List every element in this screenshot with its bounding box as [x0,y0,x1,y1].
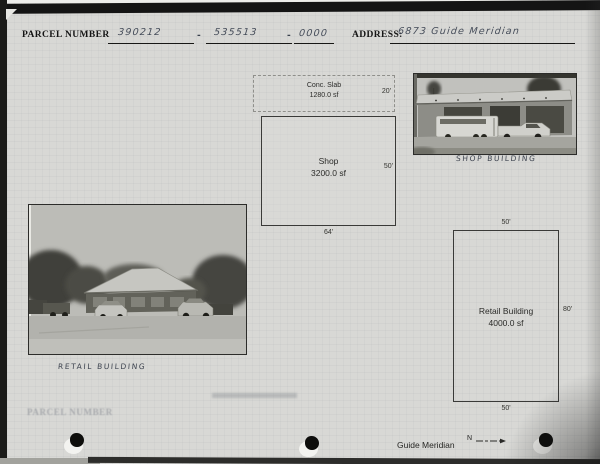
parcel-segment-2-underline [206,43,292,44]
hole-punch-center [299,436,321,457]
address-underline [390,43,575,44]
property-record-card-scan: PARCEL NUMBER 390212 - 535513 - 0000 ADD… [0,0,600,464]
conc-slab-footprint: Conc. Slab 1280.0 sf 20' [253,75,395,112]
retail-label: Retail Building [454,305,558,317]
bleed-through-bar [212,393,297,398]
shop-label: Shop [262,155,395,167]
parcel-segment-2-value: 535513 [213,27,258,38]
retail-bottom-dim: 50' [453,405,559,412]
parcel-segment-1-value: 390212 [117,27,162,38]
parcel-segment-3-underline [294,43,334,44]
scan-bottom-left-shade [0,458,100,464]
retail-footprint: Retail Building 4000.0 sf [453,230,559,402]
parcel-segment-3-value: 0000 [298,28,328,39]
scan-bottom-black-edge [88,457,600,464]
retail-side-dim: 80' [563,306,572,313]
address-label: ADDRESS: [352,30,403,40]
parcel-segment-1-underline [108,43,194,44]
parcel-separator-2: - [287,31,291,41]
bleed-through-text: PARCEL NUMBER [27,407,113,417]
road-name-label: Guide Meridian [397,440,455,450]
shop-area: 3200.0 sf [262,167,395,179]
compass-north-label: N [467,435,472,442]
shop-base-dim: 64' [261,229,396,236]
parcel-separator-1: - [197,31,201,41]
north-arrow-icon [476,437,506,445]
conc-slab-label: Conc. Slab [254,81,394,91]
address-value: 6873 Guide Meridian [397,26,520,37]
conc-slab-area: 1280.0 sf [254,91,394,101]
retail-top-dim: 50' [453,219,559,226]
shop-photo-rv [436,116,498,140]
shop-side-dim: 50' [384,163,393,170]
scan-left-black-edge [0,0,7,458]
hole-punch-right [533,433,555,454]
retail-photo-caption: RETAIL BUILDING [58,362,147,371]
parcel-number-label: PARCEL NUMBER [22,30,110,40]
shop-footprint: Shop 3200.0 sf 50' [261,116,396,226]
retail-area: 4000.0 sf [454,317,558,329]
conc-slab-depth-dim: 20' [382,88,391,95]
shop-photo-caption: SHOP BUILDING [456,154,537,163]
hole-punch-left [64,433,86,454]
retail-photo [28,204,247,355]
shop-photo [413,73,577,155]
page-corner-fold [6,9,17,20]
